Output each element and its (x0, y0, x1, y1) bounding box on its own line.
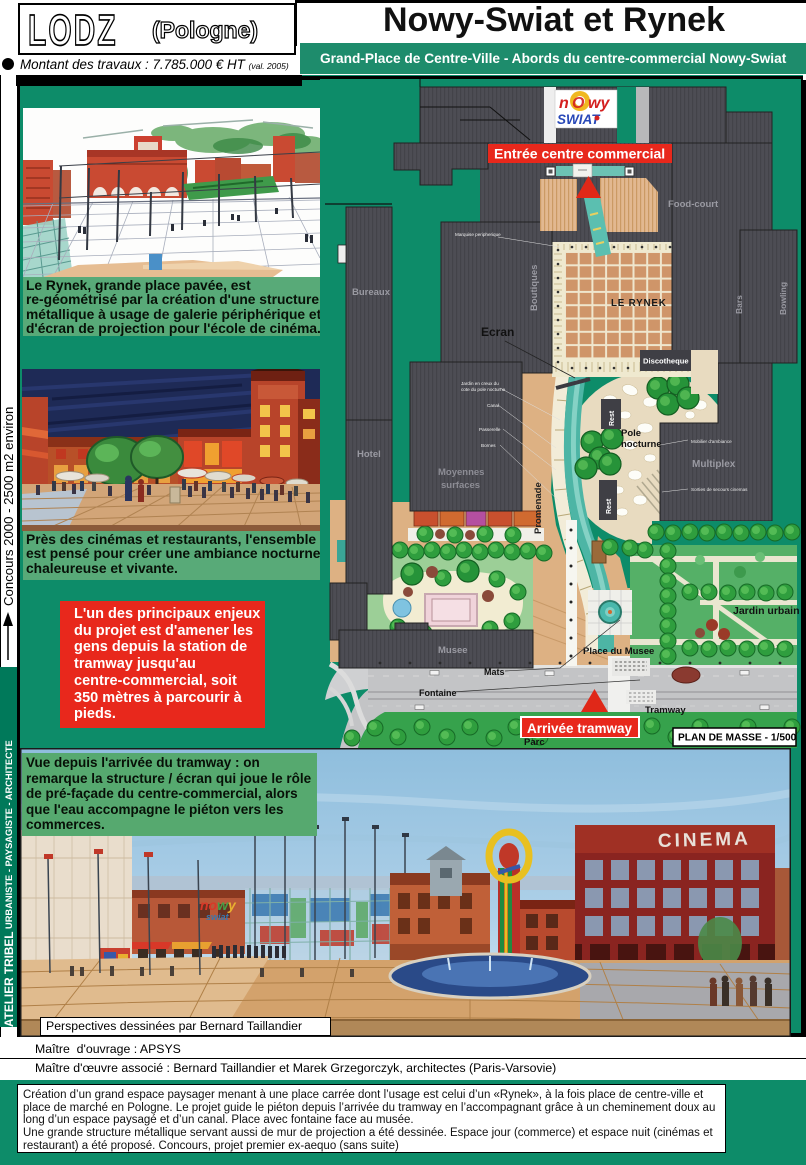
svg-text:Sorties de secours cinemas: Sorties de secours cinemas (691, 487, 748, 492)
svg-text:Mats: Mats (484, 667, 505, 677)
svg-text:CINEMA: CINEMA (658, 829, 751, 852)
svg-text:Tramway: Tramway (645, 705, 686, 716)
svg-text:Jardin en creux du: Jardin en creux du (461, 381, 499, 386)
svg-text:Food-court: Food-court (668, 199, 719, 210)
svg-text:SWIAT: SWIAT (557, 112, 601, 127)
svg-text:Parc: Parc (524, 737, 545, 748)
svg-text:nocturne: nocturne (621, 439, 662, 450)
svg-text:Bowling: Bowling (778, 282, 788, 315)
svg-text:Canal: Canal (487, 403, 499, 408)
svg-text:Bornes: Bornes (481, 443, 496, 448)
svg-text:PLAN DE MASSE - 1/500: PLAN DE MASSE - 1/500 (678, 733, 797, 744)
svg-text:Hotel: Hotel (357, 449, 381, 460)
svg-text:Arrivée tramway: Arrivée tramway (527, 721, 633, 736)
svg-text:wy: wy (588, 95, 610, 112)
svg-text:Mobilier d'ambiance: Mobilier d'ambiance (691, 439, 732, 444)
svg-text:n: n (559, 95, 569, 112)
svg-text:Bureaux: Bureaux (352, 287, 391, 298)
svg-text:Discotheque: Discotheque (643, 357, 689, 366)
svg-text:Promenade: Promenade (533, 482, 544, 534)
svg-text:Marquise peripherique: Marquise peripherique (455, 232, 501, 237)
svg-text:nowy: nowy (200, 897, 237, 913)
svg-text:Fontaine: Fontaine (419, 688, 457, 698)
svg-text:LE RYNEK: LE RYNEK (611, 298, 667, 309)
svg-text:Rest: Rest (606, 498, 613, 514)
svg-text:Multiplex: Multiplex (692, 459, 736, 470)
svg-text:cote du pole nocturne: cote du pole nocturne (461, 387, 506, 392)
svg-text:Moyennes: Moyennes (438, 467, 484, 478)
svg-text:Ecran: Ecran (481, 325, 514, 339)
svg-text:Jardin urbain: Jardin urbain (733, 605, 800, 617)
svg-text:Pole: Pole (621, 428, 641, 439)
svg-text:Boutiques: Boutiques (529, 265, 540, 311)
svg-text:Bars: Bars (734, 295, 744, 314)
svg-text:Passerelle: Passerelle (479, 427, 501, 432)
svg-text:O: O (572, 95, 585, 112)
svg-text:surfaces: surfaces (441, 480, 480, 491)
svg-text:Musee: Musee (438, 645, 468, 656)
svg-text:swiat: swiat (206, 912, 230, 922)
svg-text:Rest: Rest (609, 410, 616, 426)
svg-text:Place du Musee: Place du Musee (583, 646, 654, 657)
svg-text:Entrée centre commercial: Entrée centre commercial (494, 146, 665, 162)
